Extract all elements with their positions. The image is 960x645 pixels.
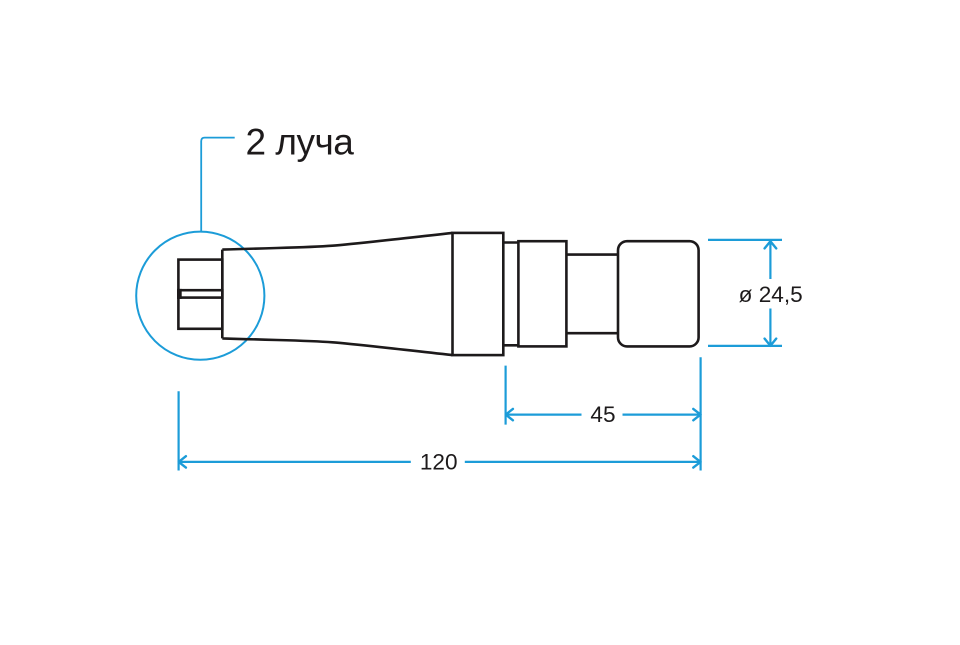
svg-text:120: 120 bbox=[420, 449, 458, 474]
svg-text:ø 24,5: ø 24,5 bbox=[739, 282, 803, 307]
svg-text:45: 45 bbox=[590, 402, 615, 427]
svg-text:2 луча: 2 луча bbox=[246, 121, 355, 162]
